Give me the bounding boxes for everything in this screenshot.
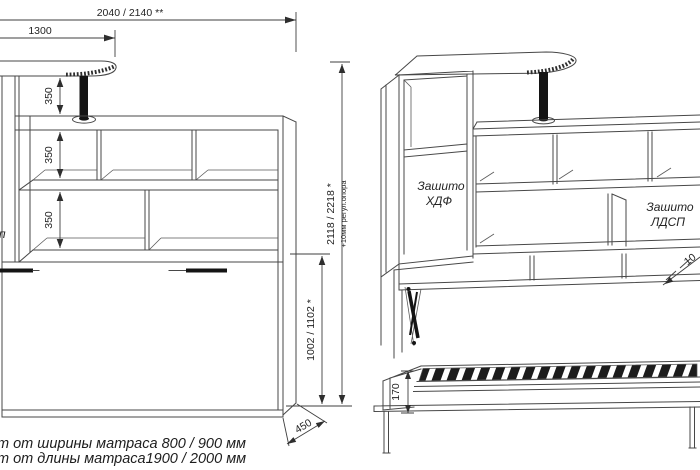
dim-shelf-row-1-label: 350	[43, 87, 55, 105]
dim-shelf-row-3-label: 350	[43, 211, 55, 229]
table-leg-front	[80, 76, 89, 118]
bed-leg-left	[383, 412, 390, 454]
cabinet-carcass-front	[2, 76, 296, 417]
plinth-ledge	[381, 254, 700, 358]
drawing-canvas: 2040 / 2140 ** 1300 350 350 350	[0, 0, 700, 470]
dim-table-width-label: 1300	[28, 25, 52, 37]
footnotes: т от ширины матраса 800 / 900 мм т от дл…	[0, 436, 246, 467]
footnote-mattress-length: т от длины матраса1900 / 2000 мм	[0, 451, 246, 467]
label-hdf-line2: ХДФ	[425, 194, 452, 208]
table-top-side	[395, 52, 576, 124]
dim-overall-height-note: +10мм регул.опора	[339, 180, 348, 248]
bed-platform	[374, 361, 700, 453]
side-view: Зашито ХДФ Зашито ЛДСП	[374, 52, 700, 453]
bed-slats	[419, 364, 697, 381]
dim-bed-section-height-label: 1002 / 1102 *	[305, 299, 317, 361]
label-ldsp-line1: Зашито	[646, 200, 694, 214]
dim-clipped-label: 10	[682, 251, 699, 268]
technical-drawing: 2040 / 2140 ** 1300 350 350 350	[0, 0, 700, 470]
dim-shelf-row-3: 350	[43, 192, 63, 248]
dim-shelf-row-2: 350	[43, 132, 63, 178]
bed-leg-right	[689, 407, 696, 448]
bed-handle-left	[0, 269, 33, 273]
dim-overall-height: 2118 / 2218 * +10мм регул.опора	[325, 62, 350, 404]
tall-cabinet: Зашито ХДФ	[381, 71, 473, 277]
table-leg-side	[539, 72, 548, 119]
label-hdf-line1: Зашито	[417, 179, 465, 193]
bed-handle-right	[186, 269, 227, 273]
table-top-front	[0, 61, 116, 123]
dim-shelf-row-1: 350	[43, 78, 63, 114]
bed-front-handles	[0, 269, 227, 273]
dim-side-depth: 450	[283, 404, 327, 446]
dim-overall-height-label: 2118 / 2218 *	[325, 183, 337, 245]
dim-shelf-row-2-label: 350	[43, 146, 55, 164]
dim-table-width: 1300	[0, 25, 115, 57]
dim-side-depth-label: 450	[293, 417, 314, 436]
label-ldsp-line2: ЛДСП	[650, 215, 685, 229]
dim-total-width-label: 2040 / 2140 **	[97, 7, 164, 19]
dim-frame-height-label: 170	[390, 383, 402, 401]
front-view: 2040 / 2140 ** 1300 350 350 350	[0, 7, 352, 467]
dim-clipped-right: 10	[663, 251, 700, 285]
edge-text-fragment: п	[0, 227, 6, 241]
gas-lift-mechanism	[405, 287, 421, 346]
shelf-unit-side: Зашито ЛДСП	[473, 115, 700, 254]
footnote-mattress-width: т от ширины матраса 800 / 900 мм	[0, 436, 246, 452]
